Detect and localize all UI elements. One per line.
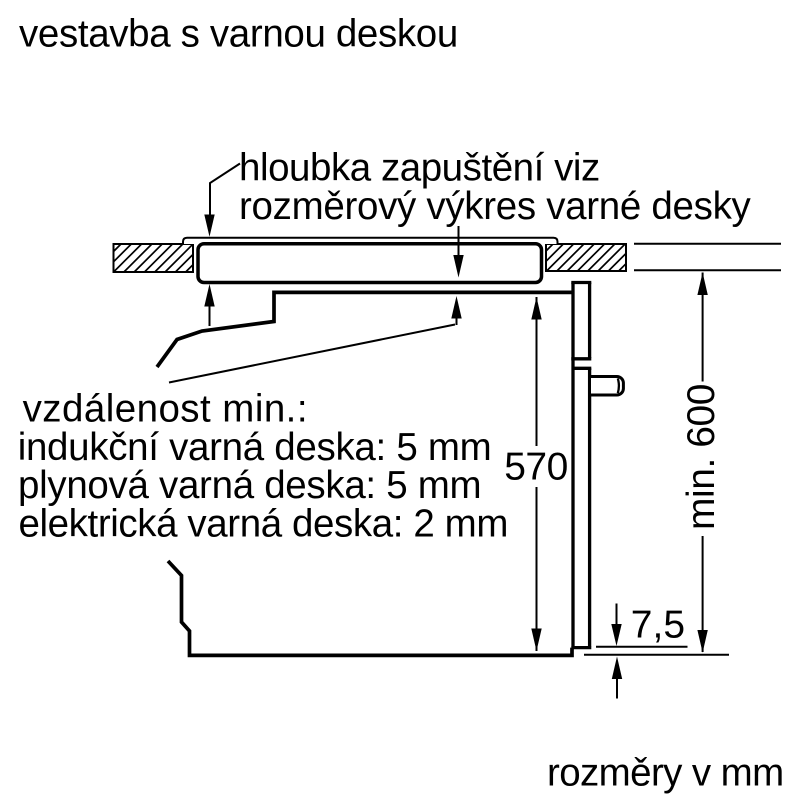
svg-text:hloubka zapuštění viz: hloubka zapuštění viz [239, 147, 600, 190]
svg-text:7,5: 7,5 [631, 604, 685, 647]
svg-text:rozměry v mm: rozměry v mm [547, 752, 784, 795]
svg-text:elektrická varná deska: 2 mm: elektrická varná deska: 2 mm [19, 503, 509, 546]
svg-text:vestavba s varnou deskou: vestavba s varnou deskou [19, 13, 458, 56]
svg-text:plynová varná deska: 5 mm: plynová varná deska: 5 mm [18, 464, 481, 507]
svg-text:indukční varná deska: 5 mm: indukční varná deska: 5 mm [18, 426, 492, 469]
svg-text:rozměrový výkres varné desky: rozměrový výkres varné desky [239, 185, 752, 228]
svg-text:570: 570 [504, 445, 567, 488]
svg-text:vzdálenost min.:: vzdálenost min.: [23, 388, 308, 431]
svg-text:min. 600: min. 600 [680, 384, 723, 530]
